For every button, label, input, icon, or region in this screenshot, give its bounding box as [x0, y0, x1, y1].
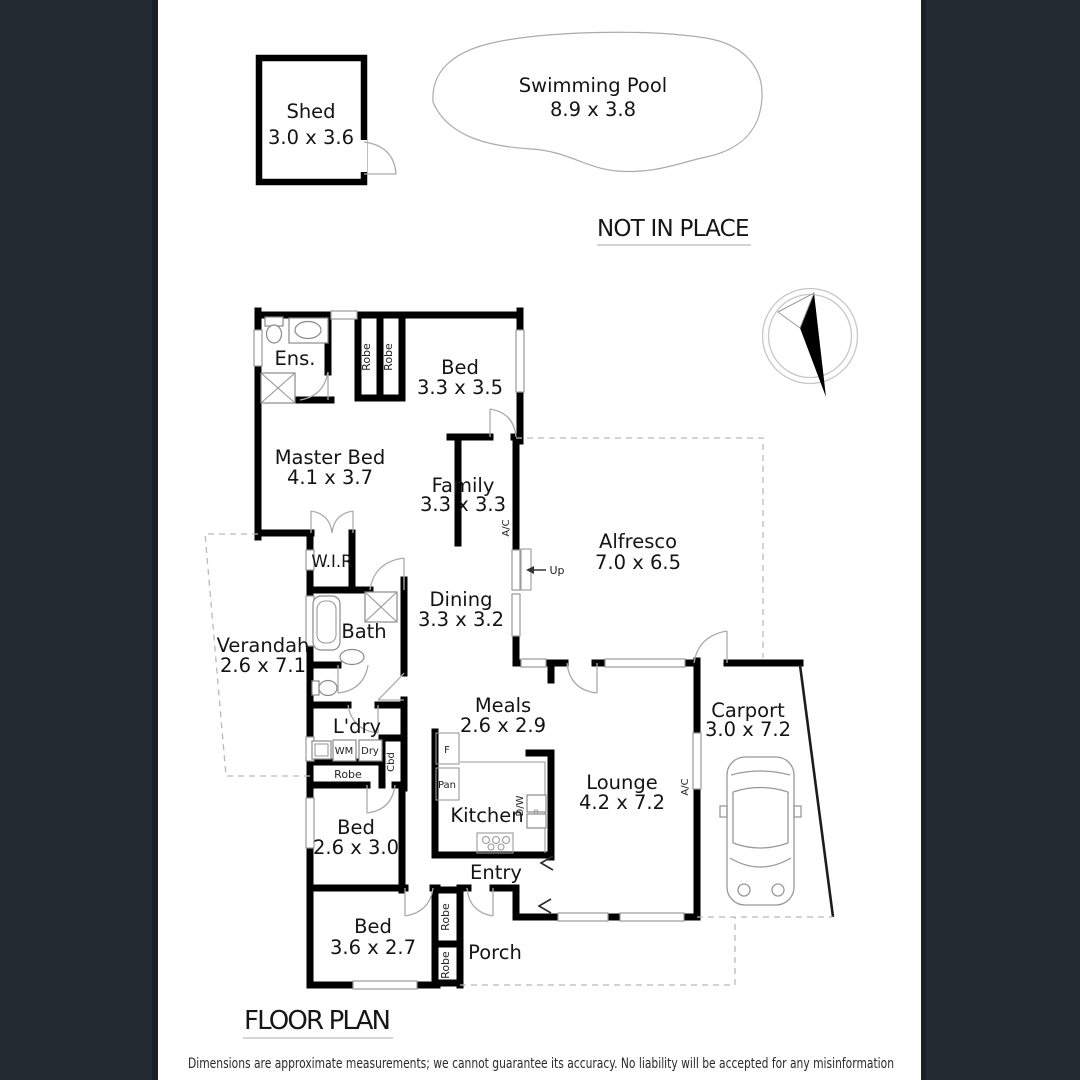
room-dims-family: 3.3 x 3.3 [420, 493, 506, 516]
right-frame-edge [921, 0, 926, 1080]
room-label-porch: Porch [468, 941, 522, 964]
up-label: Up [549, 564, 564, 577]
room-dims-carport: 3.0 x 7.2 [705, 718, 791, 741]
room-dims-master: 4.1 x 3.7 [287, 466, 373, 489]
cupboard-label: Cbd [386, 752, 397, 772]
pool-dims: 8.9 x 3.8 [550, 98, 636, 121]
floor-plan-title: FLOOR PLAN [244, 1006, 392, 1036]
ac-label-1: A/C [501, 519, 512, 536]
shed-door-opening [357, 140, 367, 172]
disclaimer-text: Dimensions are approximate measurements;… [188, 1056, 894, 1072]
right-frame [921, 0, 1080, 1080]
dishwasher-label: D/W [515, 795, 526, 816]
room-dims-lounge: 4.2 x 7.2 [579, 791, 665, 814]
robe-label-1: Robe [360, 343, 373, 371]
room-dims-dining: 3.3 x 3.2 [418, 608, 504, 631]
robe-label-4: Robe [439, 903, 452, 931]
dryer-label: Dry [361, 746, 379, 757]
left-frame [0, 0, 158, 1080]
left-frame-edge [152, 0, 158, 1080]
pantry-label: Pan [438, 780, 456, 791]
shed-label: Shed [286, 100, 335, 123]
room-label-kitchen: Kitchen [450, 804, 523, 827]
wc-fixtures [312, 681, 337, 696]
pool-label: Swimming Pool [519, 74, 667, 97]
not-in-place-note: NOT IN PLACE [597, 216, 751, 245]
robe-label-5: Robe [439, 951, 452, 979]
shed-dims: 3.0 x 3.6 [268, 126, 354, 149]
room-dims-alfresco: 7.0 x 6.5 [595, 551, 681, 574]
room-label-ens: Ens. [274, 347, 315, 370]
room-dims-bed2: 2.6 x 3.0 [313, 836, 399, 859]
not-in-place-text: NOT IN PLACE [597, 216, 751, 242]
floor-plan-canvas: Shed 3.0 x 3.6 Swimming Pool 8.9 x 3.8 N… [0, 0, 1080, 1080]
room-label-ldry: L'dry [333, 715, 381, 738]
room-dims-verandah: 2.6 x 7.1 [220, 654, 306, 677]
room-dims-bed1: 3.3 x 3.5 [417, 376, 503, 399]
room-label-bath: Bath [341, 620, 386, 643]
room-label-wir: W.I.R [311, 552, 352, 571]
floor-plan-page: Shed 3.0 x 3.6 Swimming Pool 8.9 x 3.8 N… [0, 0, 1080, 1080]
room-dims-bed3: 3.6 x 2.7 [330, 936, 416, 959]
room-label-entry: Entry [470, 861, 522, 884]
fridge-label: F [444, 745, 450, 756]
robe-label-3: Robe [334, 768, 362, 781]
ac-label-2: A/C [680, 778, 691, 795]
room-label-bed3: Bed [354, 915, 392, 938]
room-dims-meals: 2.6 x 2.9 [460, 714, 546, 737]
washing-machine-label: WM [335, 746, 354, 757]
robe-label-2: Robe [382, 343, 395, 371]
room-label-alfresco: Alfresco [599, 530, 677, 553]
plan-title: FLOOR PLAN [243, 1006, 393, 1038]
